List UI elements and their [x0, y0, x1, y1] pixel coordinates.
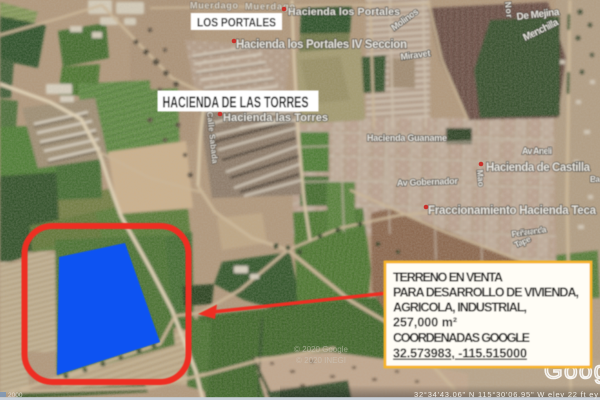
svg-text:Av Aneli: Av Aneli — [522, 146, 552, 156]
svg-text:32.573983, -115.515000: 32.573983, -115.515000 — [393, 347, 527, 361]
svg-text:Hacienda Guaname: Hacienda Guaname — [367, 133, 447, 143]
svg-text:257,000 m²: 257,000 m² — [393, 316, 457, 330]
svg-text:LOS PORTALES: LOS PORTALES — [197, 15, 276, 29]
svg-text:Hacienda los Portales: Hacienda los Portales — [288, 6, 400, 18]
svg-text:2000: 2000 — [8, 392, 23, 399]
svg-text:© 2020 INEGI: © 2020 INEGI — [296, 356, 346, 365]
svg-text:Hacienda de Castilla: Hacienda de Castilla — [486, 162, 591, 174]
svg-text:Nor: Nor — [503, 1, 515, 19]
svg-text:Mao: Mao — [475, 169, 486, 187]
svg-text:AGRICOLA, INDUSTRIAL,: AGRICOLA, INDUSTRIAL, — [393, 301, 527, 315]
svg-text:© 2020 Google: © 2020 Google — [294, 345, 348, 354]
svg-text:Hacienda los Portales IV Secci: Hacienda los Portales IV Seccion — [236, 39, 407, 51]
svg-text:Fraccionamiento Hacienda Teca: Fraccionamiento Hacienda Teca — [428, 205, 597, 217]
svg-text:TERRENO EN VENTA: TERRENO EN VENTA — [393, 271, 503, 285]
svg-text:COORDENADAS GOOGLE: COORDENADAS GOOGLE — [393, 331, 530, 345]
svg-text:32°34'43.06" N 115°30'06.95": 32°34'43.06" N 115°30'06.95" W elev 22 f… — [414, 390, 598, 399]
svg-text:HACIENDA DE LAS TORRES: HACIENDA DE LAS TORRES — [163, 94, 309, 111]
svg-text:Hacienda las Torres: Hacienda las Torres — [223, 112, 328, 124]
svg-text:Ba: Ba — [590, 174, 600, 184]
svg-text:PARA DESARROLLO DE VIVIENDA,: PARA DESARROLLO DE VIVIENDA, — [393, 286, 579, 300]
svg-text:Muerdago: Muerdago — [190, 1, 239, 11]
